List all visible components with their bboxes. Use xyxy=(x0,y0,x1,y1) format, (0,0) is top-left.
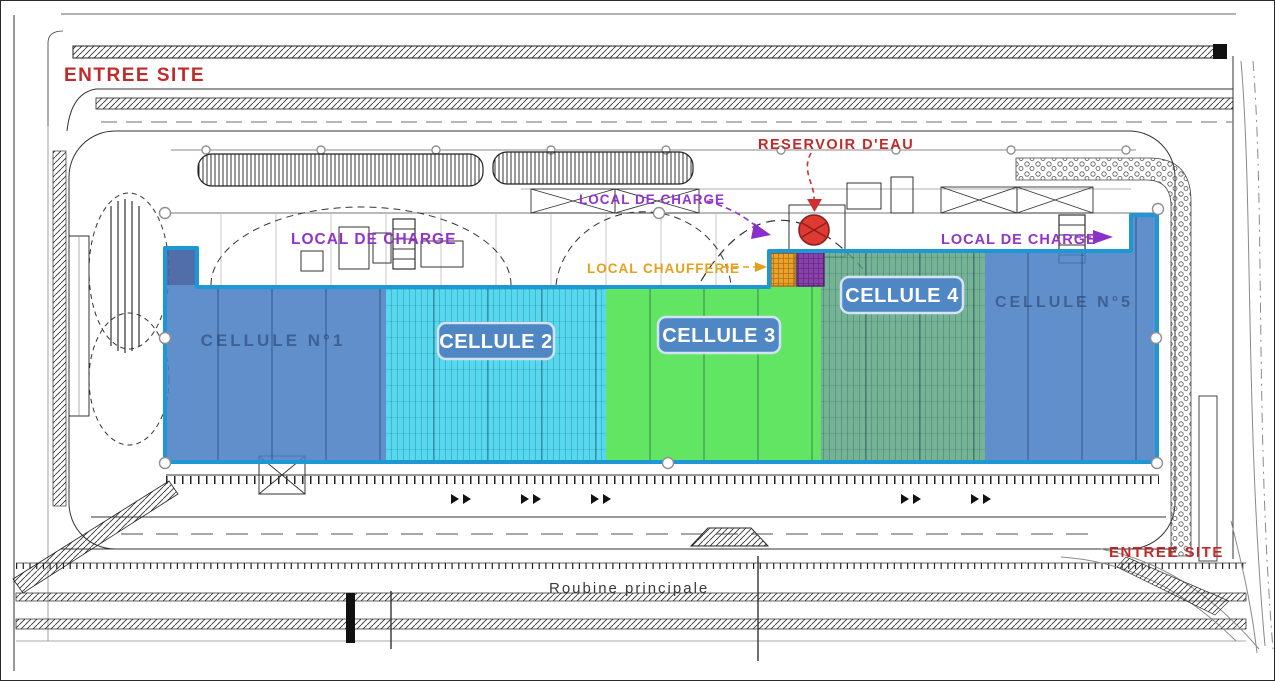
badge-cellule-4[interactable]: CELLULE 4 xyxy=(841,277,963,313)
selection-handle xyxy=(160,333,171,344)
local-de-charge-right-label: LOCAL DE CHARGE xyxy=(941,232,1097,248)
selection-handle xyxy=(663,458,674,469)
dock-strips xyxy=(198,152,693,186)
roubine-principale-label: Roubine principale xyxy=(549,580,709,597)
bottom-right-entrance xyxy=(1061,521,1259,653)
local-chaufferie-label: LOCAL CHAUFFERIE xyxy=(587,261,740,276)
selection-handle xyxy=(654,208,665,219)
badge-cellule-2[interactable]: CELLULE 2 xyxy=(438,323,554,359)
badge-cellule-4-label: CELLULE 4 xyxy=(845,285,959,307)
entree-site-bottom-label: ENTREE SITE xyxy=(1109,544,1224,561)
top-road-bands xyxy=(67,44,1233,131)
lower-roads xyxy=(13,475,1176,593)
selection-handle xyxy=(1151,333,1162,344)
selection-handle xyxy=(1152,458,1163,469)
selection-handle xyxy=(160,458,171,469)
badge-cellule-2-label: CELLULE 2 xyxy=(439,331,552,353)
charge-block-purple[interactable] xyxy=(797,252,824,286)
reservoir-eau-label: RESERVOIR D'EAU xyxy=(758,137,914,153)
water-reservoir xyxy=(799,153,829,245)
cellule-1-watermark: CELLULE N°1 xyxy=(201,331,346,350)
local-de-charge-center-label: LOCAL DE CHARGE xyxy=(579,192,725,207)
cellule-5-watermark: CELLULE N°5 xyxy=(995,294,1133,311)
selection-handle xyxy=(1153,204,1164,215)
local-de-charge-left-label: LOCAL DE CHARGE xyxy=(291,231,456,248)
entree-site-top-label: ENTREE SITE xyxy=(64,65,205,86)
site-plan: ENTREE SITE RESERVOIR D'EAU LOCAL DE CHA… xyxy=(0,0,1275,681)
selection-handle xyxy=(160,208,171,219)
charge-block-orange[interactable] xyxy=(771,253,795,286)
badge-cellule-3[interactable]: CELLULE 3 xyxy=(658,317,780,353)
badge-cellule-3-label: CELLULE 3 xyxy=(662,325,775,347)
canal xyxy=(16,556,1246,661)
